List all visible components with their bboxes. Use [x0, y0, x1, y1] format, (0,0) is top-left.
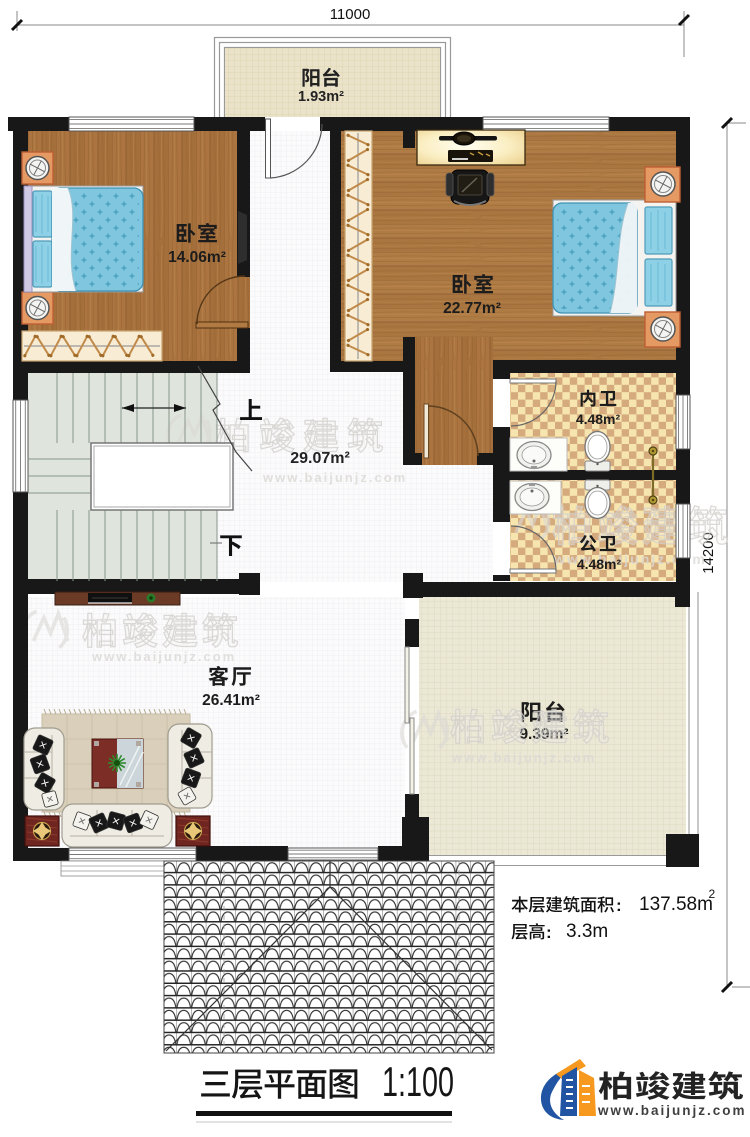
svg-text::: : [616, 896, 622, 915]
svg-text:22.77m²: 22.77m² [443, 300, 501, 317]
svg-text:www.baijunjz.com: www.baijunjz.com [597, 1103, 747, 1118]
svg-text:14.06m²: 14.06m² [168, 249, 226, 266]
svg-text:11000: 11000 [330, 6, 371, 23]
svg-text:2: 2 [709, 887, 716, 901]
svg-text:www.baijunjz.com: www.baijunjz.com [91, 649, 236, 664]
svg-text:4.48m²: 4.48m² [577, 556, 622, 572]
svg-text:www.baijunjz.com: www.baijunjz.com [262, 470, 407, 485]
svg-text::: : [546, 923, 552, 942]
svg-text:1.93m²: 1.93m² [298, 89, 344, 105]
svg-text:3.3m: 3.3m [566, 921, 608, 942]
svg-text:1:100: 1:100 [382, 1058, 454, 1105]
svg-text:26.41m²: 26.41m² [202, 692, 260, 709]
svg-text:4.48m²: 4.48m² [576, 411, 621, 427]
svg-text:137.58m: 137.58m [639, 894, 713, 915]
svg-text:29.07m²: 29.07m² [290, 450, 350, 467]
svg-text:www.baijunjz.com: www.baijunjz.com [451, 750, 596, 765]
